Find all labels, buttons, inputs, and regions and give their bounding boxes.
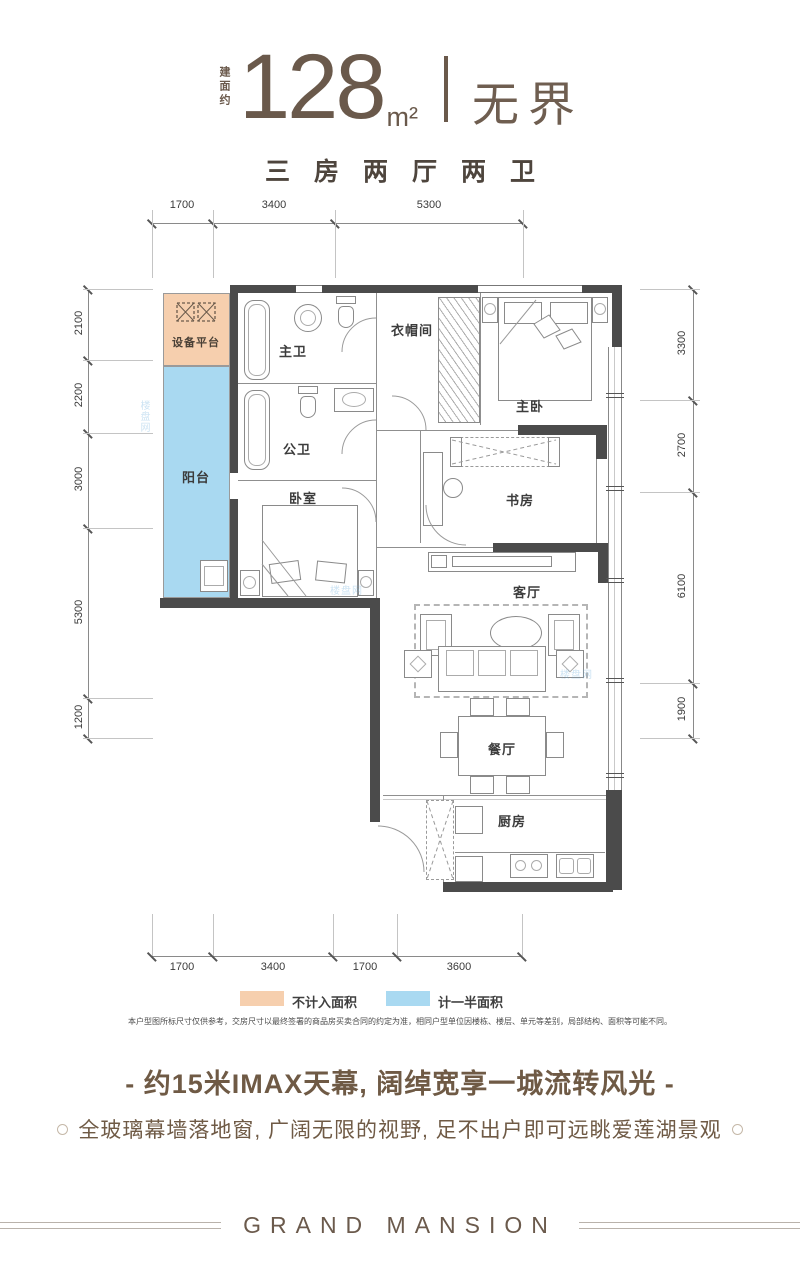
wardrobe-icon (438, 297, 480, 423)
toilet-icon (298, 386, 318, 394)
chair-icon (470, 698, 494, 716)
dim-left-3: 3000 (73, 455, 85, 503)
footer: GRAND MANSION (0, 1212, 800, 1239)
ring-icon (57, 1124, 68, 1135)
floorplan-flyer: 建面约 128 m² 无界 三房两厅两卫 1700 3400 5300 1700… (0, 0, 800, 1288)
watermark: 楼盘网 (560, 666, 593, 681)
marketing-subline-text: 全玻璃幕墙落地窗, 广阔无限的视野, 足不出户即可远眺爱莲湖景观 (78, 1119, 721, 1142)
shaft-icon (426, 800, 454, 880)
watermark: 楼盘网 (330, 582, 363, 597)
chair-icon (443, 478, 463, 498)
brand-logo: GRAND MANSION (243, 1212, 557, 1239)
page-title: 无界 (472, 66, 584, 135)
area-value: 128 (239, 52, 384, 124)
tv-icon (452, 556, 552, 567)
cabinet-icon (455, 806, 483, 834)
pillow-icon (269, 560, 301, 584)
chair-icon (506, 776, 530, 794)
room-label-dining: 餐厅 (470, 739, 534, 758)
legend-label-not-counted: 不计入面积 (292, 992, 357, 1011)
watermark: 楼盘网 (136, 400, 151, 433)
dim-right-4: 1900 (676, 685, 688, 733)
room-label-bedroom: 卧室 (271, 488, 335, 507)
dim-top-1: 1700 (158, 199, 206, 211)
room-label-equipment: 设备平台 (164, 334, 228, 350)
chair-icon (546, 732, 564, 758)
disclaimer-text: 本户型图所标尺寸仅供参考，交房尺寸以最终签署的商品房买卖合同的约定为准，相同户型… (40, 1016, 760, 1027)
cabinet-icon (455, 856, 483, 882)
area-prefix: 建面约 (216, 66, 232, 108)
coffee-table-icon (490, 616, 542, 650)
header-divider (444, 56, 448, 122)
room-label-living: 客厅 (495, 582, 559, 601)
dim-bottom-1: 1700 (158, 961, 206, 973)
marketing-headline: - 约15米IMAX天幕, 阔绰宽享一城流转风光 - (0, 1062, 800, 1101)
dim-bottom-3: 1700 (341, 961, 389, 973)
layout-subtitle: 三房两厅两卫 (0, 152, 800, 188)
desk-icon (423, 452, 443, 526)
footer-rule-right (579, 1222, 800, 1229)
pillow-icon (504, 302, 542, 324)
chair-icon (506, 698, 530, 716)
dim-right-3: 6100 (676, 562, 688, 610)
legend-swatch-half-counted (386, 991, 430, 1006)
room-label-study: 书房 (488, 490, 552, 509)
marketing-subline: 全玻璃幕墙落地窗, 广阔无限的视野, 足不出户即可远眺爱莲湖景观 (0, 1114, 800, 1144)
room-label-balcony: 阳台 (164, 467, 228, 486)
dim-left-4: 5300 (73, 588, 85, 636)
pillow-icon (550, 302, 588, 324)
header: 建面约 128 m² 无界 (0, 52, 800, 135)
chair-icon (440, 732, 458, 758)
room-label-master-bath: 主卫 (261, 341, 325, 360)
ring-icon (732, 1124, 743, 1135)
pillow-icon (315, 560, 347, 583)
dim-bottom-2: 3400 (249, 961, 297, 973)
footer-rule-left (0, 1222, 221, 1229)
closet-icon (450, 437, 560, 467)
dim-right-2: 2700 (676, 421, 688, 469)
dim-right-1: 3300 (676, 319, 688, 367)
chair-icon (470, 776, 494, 794)
dim-top-3: 5300 (405, 199, 453, 211)
room-label-cloakroom: 衣帽间 (380, 320, 444, 339)
legend-swatch-not-counted (240, 991, 284, 1006)
dim-left-2: 2200 (73, 371, 85, 419)
room-label-master-bedroom: 主卧 (498, 396, 562, 415)
dim-top-2: 3400 (250, 199, 298, 211)
dim-left-1: 2100 (73, 299, 85, 347)
room-label-kitchen: 厨房 (480, 811, 544, 830)
dim-left-5: 1200 (73, 693, 85, 741)
legend-label-half-counted: 计一半面积 (438, 992, 503, 1011)
toilet-icon (336, 296, 356, 304)
equipment-platform-zone (163, 293, 230, 366)
dim-bottom-4: 3600 (435, 961, 483, 973)
area-unit: m² (387, 102, 418, 133)
room-label-public-bath: 公卫 (265, 439, 329, 458)
